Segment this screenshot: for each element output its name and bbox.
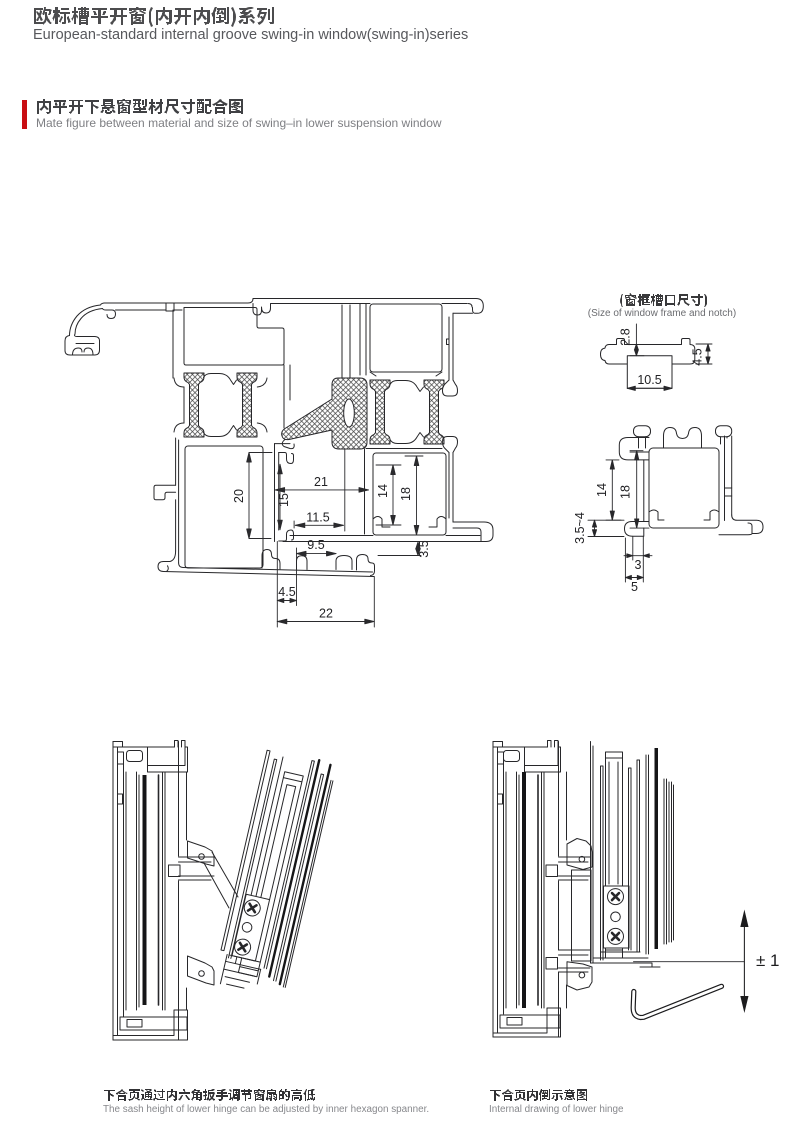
svg-text:10.5: 10.5: [637, 373, 661, 387]
svg-text:3.5: 3.5: [417, 540, 431, 557]
svg-text:3: 3: [635, 558, 642, 572]
svg-text:3.5~4: 3.5~4: [573, 512, 587, 544]
svg-text:± 1: ± 1: [756, 951, 780, 970]
svg-text:5: 5: [631, 580, 638, 594]
svg-text:4.5: 4.5: [691, 348, 705, 365]
svg-text:11.5: 11.5: [306, 511, 329, 525]
svg-text:18: 18: [399, 487, 413, 501]
svg-text:2.8: 2.8: [619, 328, 633, 345]
svg-text:14: 14: [595, 483, 609, 497]
svg-text:20: 20: [232, 489, 246, 503]
svg-text:9.5: 9.5: [307, 538, 324, 552]
svg-text:4.5: 4.5: [278, 585, 295, 599]
svg-text:22: 22: [319, 607, 333, 621]
svg-text:21: 21: [314, 475, 328, 489]
svg-text:14: 14: [376, 484, 390, 498]
svg-text:18: 18: [619, 485, 633, 499]
svg-text:15: 15: [277, 493, 291, 507]
